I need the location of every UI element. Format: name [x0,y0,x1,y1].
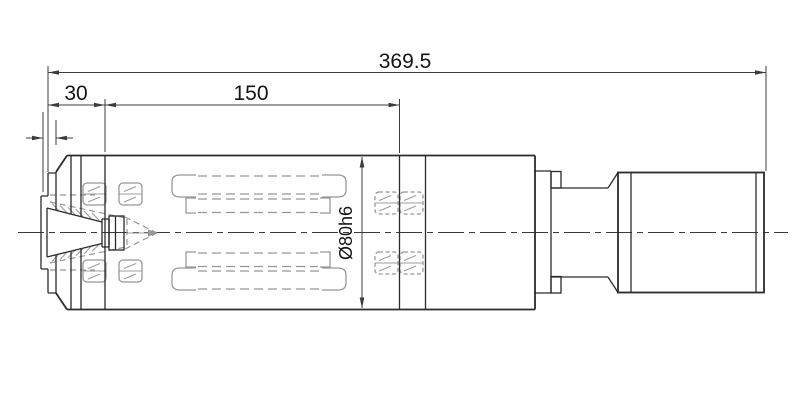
dimension-annotations: 369.5 30 150 Ø80h6 [26,50,766,309]
spindle-drawing: 369.5 30 150 Ø80h6 [0,0,800,400]
dimension-small-stickout [26,136,73,141]
technical-drawing-canvas: 369.5 30 150 Ø80h6 [0,0,800,400]
body-length-label: 150 [233,82,268,105]
dimension-body-length: 150 [105,82,400,107]
overall-length-label: 369.5 [379,50,432,73]
dimension-overall-length: 369.5 [48,50,766,75]
front-section-label: 30 [64,82,87,105]
body-diameter-label: Ø80h6 [336,206,356,260]
dimension-front-section: 30 [48,82,105,107]
